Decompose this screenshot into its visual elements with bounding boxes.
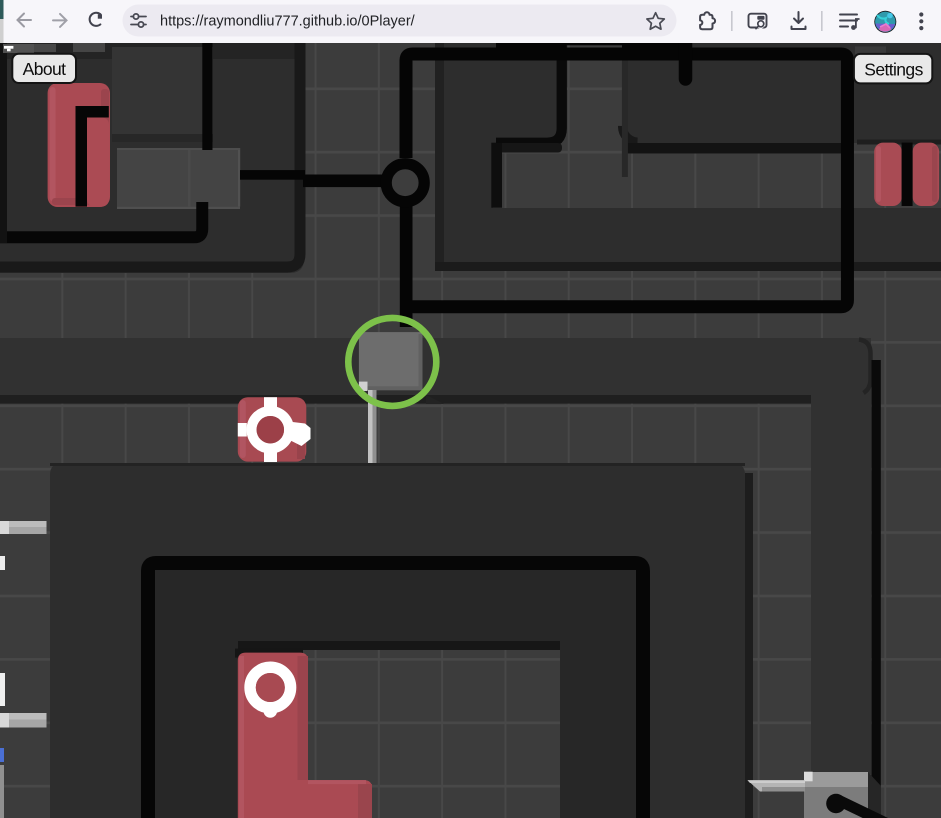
svg-text:About: About <box>23 59 66 79</box>
svg-text:Settings: Settings <box>864 59 923 79</box>
svg-text:https://raymondliu777.github.i: https://raymondliu777.github.io/0Player/ <box>160 14 416 30</box>
